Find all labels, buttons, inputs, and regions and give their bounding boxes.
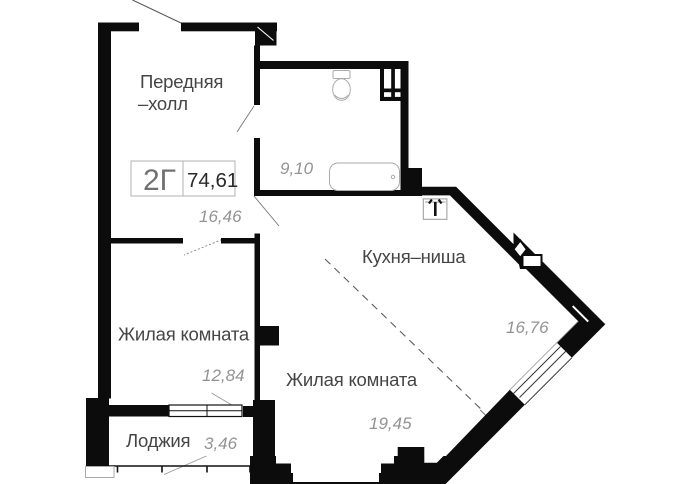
svg-text:19,45: 19,45	[369, 414, 412, 433]
svg-text:Лоджия: Лоджия	[126, 430, 190, 451]
svg-text:Кухня–ниша: Кухня–ниша	[362, 246, 466, 267]
svg-text:–холл: –холл	[138, 93, 188, 114]
svg-text:Жилая комната: Жилая комната	[286, 369, 418, 390]
svg-text:9,10: 9,10	[280, 159, 314, 178]
svg-text:16,46: 16,46	[199, 207, 242, 226]
svg-text:Жилая комната: Жилая комната	[118, 324, 250, 345]
svg-text:Передняя: Передняя	[140, 71, 223, 92]
svg-text:12,84: 12,84	[202, 366, 245, 385]
svg-text:2Г: 2Г	[143, 164, 176, 197]
svg-text:3,46: 3,46	[204, 434, 238, 453]
svg-text:74,61: 74,61	[187, 169, 238, 192]
svg-text:16,76: 16,76	[506, 318, 549, 337]
